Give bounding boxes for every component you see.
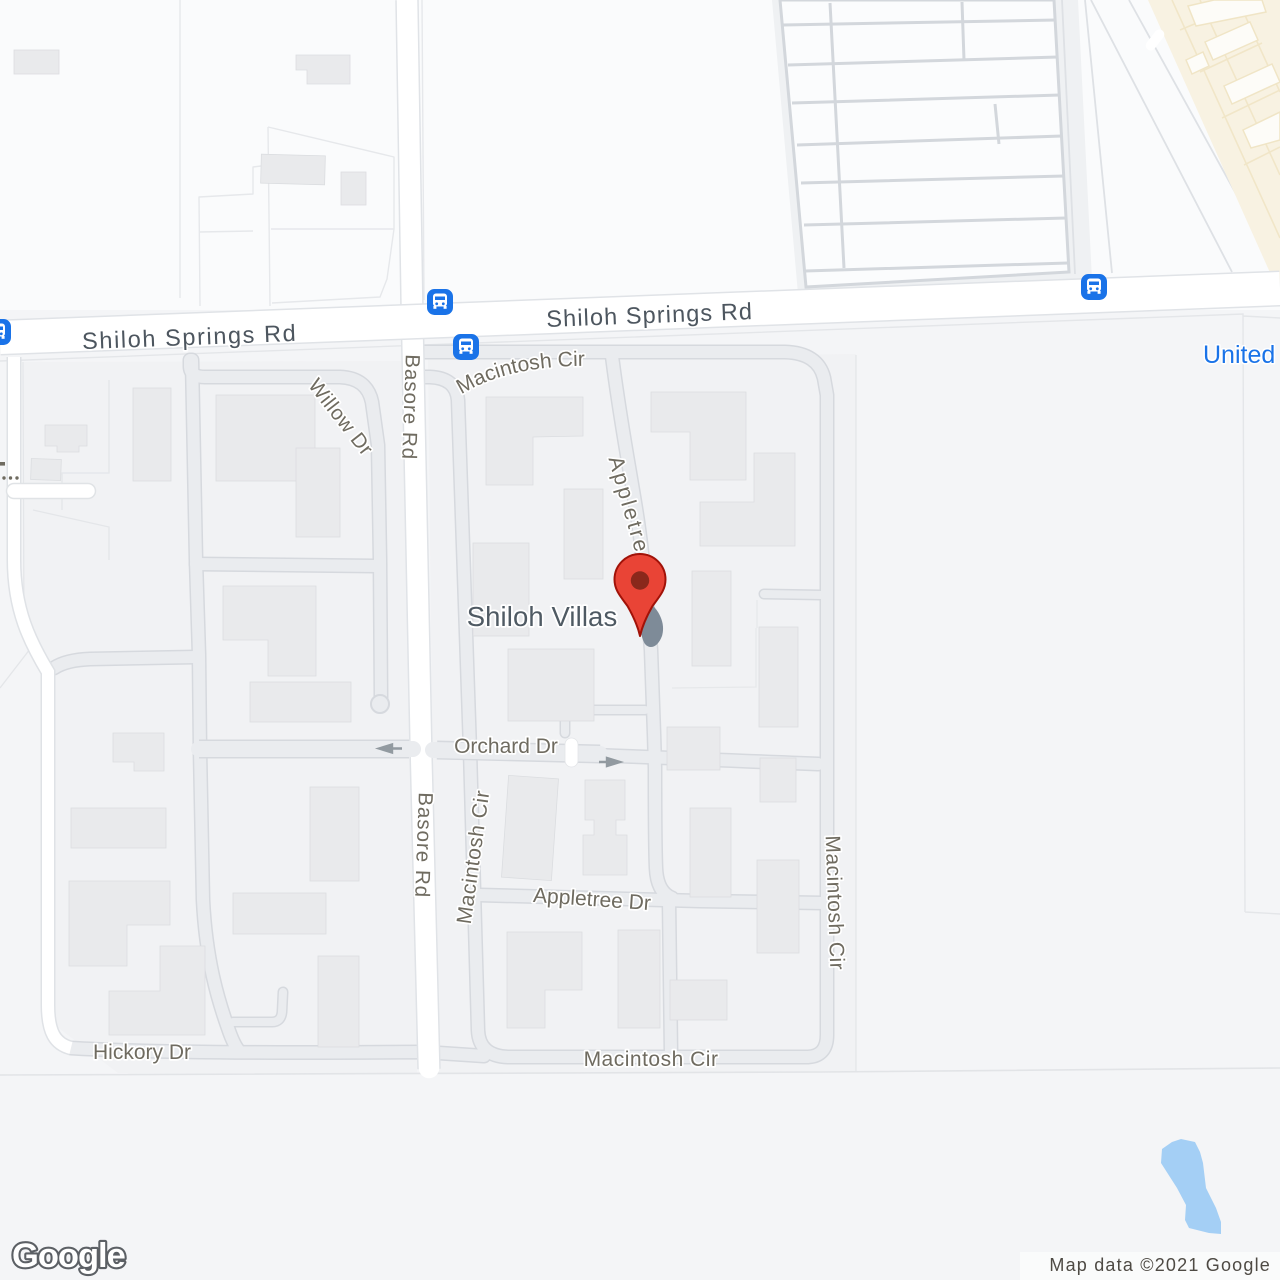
svg-text:Macintosh Cir: Macintosh Cir <box>821 835 849 971</box>
svg-text:Macintosh Cir: Macintosh Cir <box>584 1048 719 1071</box>
svg-text:Basore Rd: Basore Rd <box>410 792 437 899</box>
svg-text:Shiloh Villas: Shiloh Villas <box>467 601 618 632</box>
svg-text:United Reh: United Reh <box>1203 341 1280 369</box>
svg-text:Orchard Dr: Orchard Dr <box>454 735 558 758</box>
svg-text:Map data ©2021 Google: Map data ©2021 Google <box>1049 1255 1271 1275</box>
svg-text:Basore Rd: Basore Rd <box>397 354 424 461</box>
svg-text:Hickory Dr: Hickory Dr <box>93 1041 191 1064</box>
svg-text:Google: Google <box>12 1237 126 1275</box>
